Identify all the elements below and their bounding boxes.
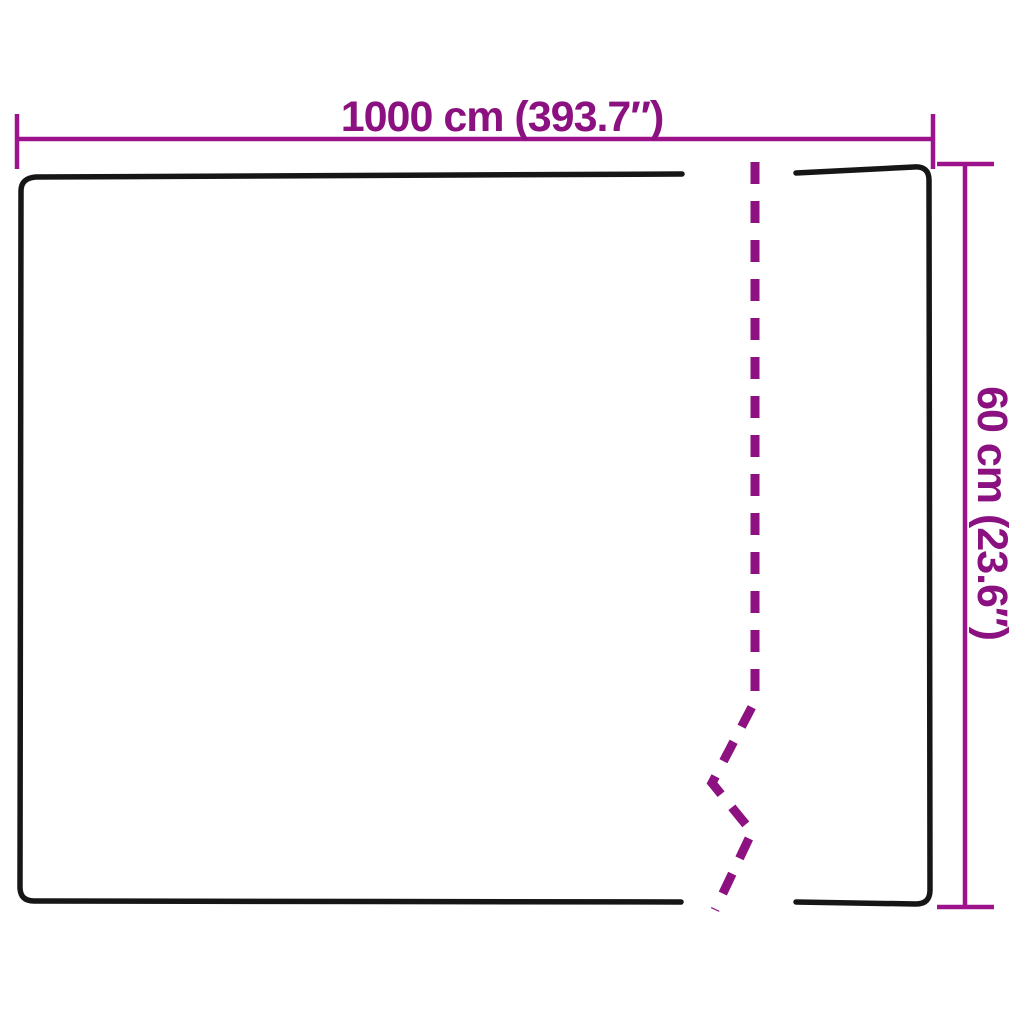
height-dimension-label: 60 cm (23.6″) (968, 386, 1016, 640)
product-outline-main (20, 174, 682, 902)
width-dimension-label: 1000 cm (393.7″) (341, 93, 664, 141)
height-dimension: 60 cm (23.6″) (937, 164, 1016, 907)
diagram-canvas: 1000 cm (393.7″) 60 cm (23.6″) (0, 0, 1024, 1024)
product-outline-flap (796, 167, 930, 904)
width-dimension: 1000 cm (393.7″) (17, 93, 933, 169)
product-dimension-diagram: 1000 cm (393.7″) 60 cm (23.6″) (0, 0, 1024, 1024)
fold-dashed-line (712, 162, 755, 910)
